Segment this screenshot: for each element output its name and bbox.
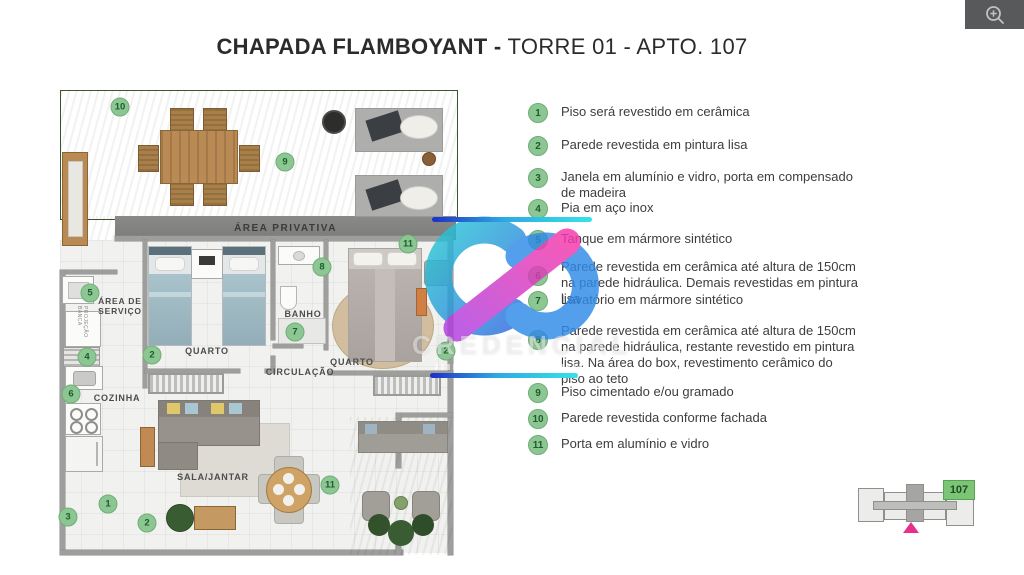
legend-item-3: 3Janela em alumínio e vidro, porta em co… bbox=[528, 168, 858, 201]
garden-chair bbox=[170, 108, 194, 132]
quarto2-label: QUARTO bbox=[330, 357, 374, 367]
keyplan-unit-107: 107 bbox=[943, 480, 975, 500]
legend-number-badge: 2 bbox=[528, 136, 548, 156]
plan-marker-8: 8 bbox=[313, 258, 332, 277]
garden-chair bbox=[203, 182, 227, 206]
legend-number-badge: 6 bbox=[528, 266, 548, 286]
legend-item-2: 2Parede revestida em pintura lisa bbox=[528, 136, 858, 156]
legend-number-badge: 1 bbox=[528, 103, 548, 123]
wall bbox=[143, 240, 147, 388]
legend-item-1: 1Piso será revestido em cerâmica bbox=[528, 103, 858, 123]
legend-item-5: 5Tanque em mármore sintético bbox=[528, 230, 858, 250]
legend-number-badge: 11 bbox=[528, 435, 548, 455]
nightstand bbox=[191, 249, 223, 279]
plants bbox=[388, 520, 414, 546]
wardrobe bbox=[373, 375, 441, 396]
legend-number-badge: 3 bbox=[528, 168, 548, 188]
page: { "title": { "bold": "CHAPADA FLAMBOYANT… bbox=[0, 0, 1024, 575]
plan-marker-5: 5 bbox=[81, 284, 100, 303]
sunbed-pad bbox=[355, 175, 443, 217]
bedroom-bench bbox=[416, 288, 427, 316]
plan-marker-2: 2 bbox=[143, 346, 162, 365]
garden-bench bbox=[62, 152, 88, 246]
legend-item-9: 9Piso cimentado e/ou gramado bbox=[528, 383, 858, 403]
legend-item-text: Parede revestida em pintura lisa bbox=[561, 136, 858, 156]
garden-chair bbox=[239, 145, 260, 172]
wall bbox=[60, 270, 117, 274]
magnifier-plus-icon bbox=[983, 3, 1007, 27]
legend-item-8: 8Parede revestida em cerâmica até altura… bbox=[528, 322, 858, 387]
twin-bed bbox=[148, 246, 192, 346]
outdoor-side-table bbox=[394, 496, 408, 510]
zoom-button[interactable] bbox=[965, 0, 1024, 29]
fridge bbox=[65, 436, 103, 472]
plan-marker-11: 11 bbox=[399, 235, 418, 254]
legend-number-badge: 8 bbox=[528, 330, 548, 350]
round-dining-table bbox=[266, 467, 312, 513]
legend-item-7: 7Lavatório em mármore sintético bbox=[528, 291, 858, 311]
legend-item-10: 10Parede revestida conforme fachada bbox=[528, 409, 858, 429]
legend-number-badge: 9 bbox=[528, 383, 548, 403]
plan-marker-10: 10 bbox=[111, 98, 130, 117]
circulacao-label: CIRCULAÇÃO bbox=[266, 367, 335, 377]
washer-projection: PROJEÇÃO BANCA bbox=[65, 311, 101, 347]
plan-marker-2: 2 bbox=[437, 342, 456, 361]
console-table bbox=[194, 506, 236, 530]
toilet bbox=[280, 286, 297, 310]
keyplan-location-arrow bbox=[903, 522, 919, 533]
double-bed bbox=[348, 248, 422, 362]
plan-marker-3: 3 bbox=[59, 508, 78, 527]
legend-item-text: Piso será revestido em cerâmica bbox=[561, 103, 858, 123]
plan-marker-9: 9 bbox=[276, 153, 295, 172]
sala-jantar-label: SALA/JANTAR bbox=[177, 472, 249, 482]
plan-marker-2: 2 bbox=[138, 514, 157, 533]
floor-plan: ÁREA PRIVATIVA bbox=[60, 88, 462, 558]
garden-chair bbox=[138, 145, 159, 172]
plants bbox=[412, 514, 434, 536]
plan-marker-4: 4 bbox=[78, 348, 97, 367]
legend-number-badge: 4 bbox=[528, 199, 548, 219]
garden-dining-table bbox=[160, 130, 238, 184]
twin-bed bbox=[222, 246, 266, 346]
outdoor-sofa bbox=[358, 421, 448, 453]
area-servico-label: ÁREA DE SERVIÇO bbox=[98, 296, 142, 316]
legend-number-badge: 7 bbox=[528, 291, 548, 311]
legend-item-text: Janela em alumínio e vidro, porta em com… bbox=[561, 168, 858, 201]
plan-marker-11: 11 bbox=[321, 476, 340, 495]
armchair bbox=[424, 260, 450, 286]
cozinha-label: COZINHA bbox=[94, 393, 141, 403]
legend: 1Piso será revestido em cerâmica2Parede … bbox=[528, 0, 862, 575]
banho-label: BANHO bbox=[285, 309, 322, 319]
garden-chair bbox=[170, 182, 194, 206]
building-keyplan: 107 bbox=[853, 478, 975, 536]
legend-number-badge: 10 bbox=[528, 409, 548, 429]
stove bbox=[65, 403, 101, 435]
legend-item-text: Porta em alumínio e vidro bbox=[561, 435, 858, 455]
legend-item-11: 11Porta em alumínio e vidro bbox=[528, 435, 858, 455]
legend-item-text: Piso cimentado e/ou gramado bbox=[561, 383, 858, 403]
plan-marker-1: 1 bbox=[99, 495, 118, 514]
keyplan-corridor bbox=[873, 501, 957, 510]
wall bbox=[271, 240, 275, 340]
garden-chair bbox=[203, 108, 227, 132]
plan-marker-6: 6 bbox=[62, 385, 81, 404]
legend-item-text: Parede revestida em cerâmica até altura … bbox=[561, 322, 858, 387]
legend-item-text: Parede revestida conforme fachada bbox=[561, 409, 858, 429]
garden-side-table bbox=[422, 152, 436, 166]
fire-pit bbox=[322, 110, 346, 134]
sofa-chaise bbox=[158, 442, 198, 470]
plants bbox=[368, 514, 390, 536]
legend-item-text: Lavatório em mármore sintético bbox=[561, 291, 858, 311]
quarto1-label: QUARTO bbox=[185, 346, 229, 356]
plan-marker-7: 7 bbox=[286, 323, 305, 342]
legend-item-text: Pia em aço inox bbox=[561, 199, 858, 219]
legend-number-badge: 5 bbox=[528, 230, 548, 250]
legend-item-text: Tanque em mármore sintético bbox=[561, 230, 858, 250]
wardrobe bbox=[148, 373, 224, 394]
tv-cabinet bbox=[140, 427, 155, 467]
page-title-project: CHAPADA FLAMBOYANT - bbox=[216, 34, 501, 59]
area-privativa-label: ÁREA PRIVATIVA bbox=[234, 223, 337, 234]
plant-pot bbox=[166, 504, 194, 532]
legend-item-4: 4Pia em aço inox bbox=[528, 199, 858, 219]
wall bbox=[273, 344, 303, 348]
sunbed-pad bbox=[355, 108, 443, 152]
sofa bbox=[158, 400, 260, 446]
